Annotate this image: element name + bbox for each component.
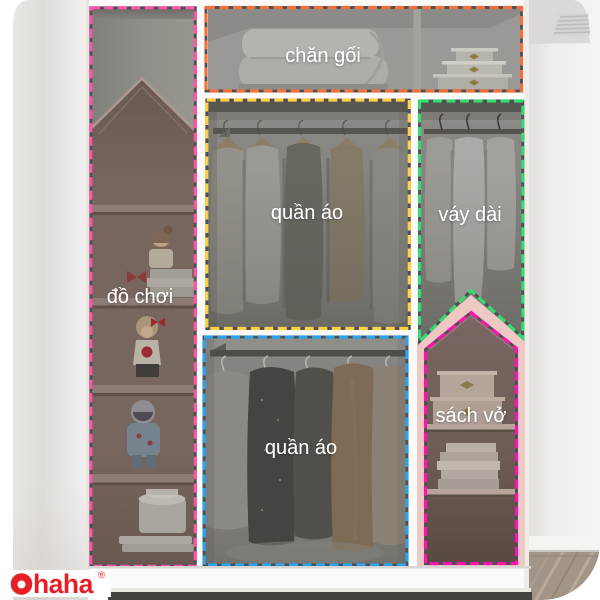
svg-text:váy dài: váy dài bbox=[438, 204, 501, 226]
svg-text:quần áo: quần áo bbox=[265, 437, 337, 459]
svg-text:đồ chơi: đồ chơi bbox=[107, 286, 173, 308]
svg-text:sách vở: sách vở bbox=[436, 405, 507, 427]
svg-text:chăn gối: chăn gối bbox=[285, 45, 361, 67]
svg-text:quần áo: quần áo bbox=[271, 202, 343, 224]
svg-text:®: ® bbox=[98, 570, 105, 581]
svg-text:haha: haha bbox=[33, 569, 94, 599]
